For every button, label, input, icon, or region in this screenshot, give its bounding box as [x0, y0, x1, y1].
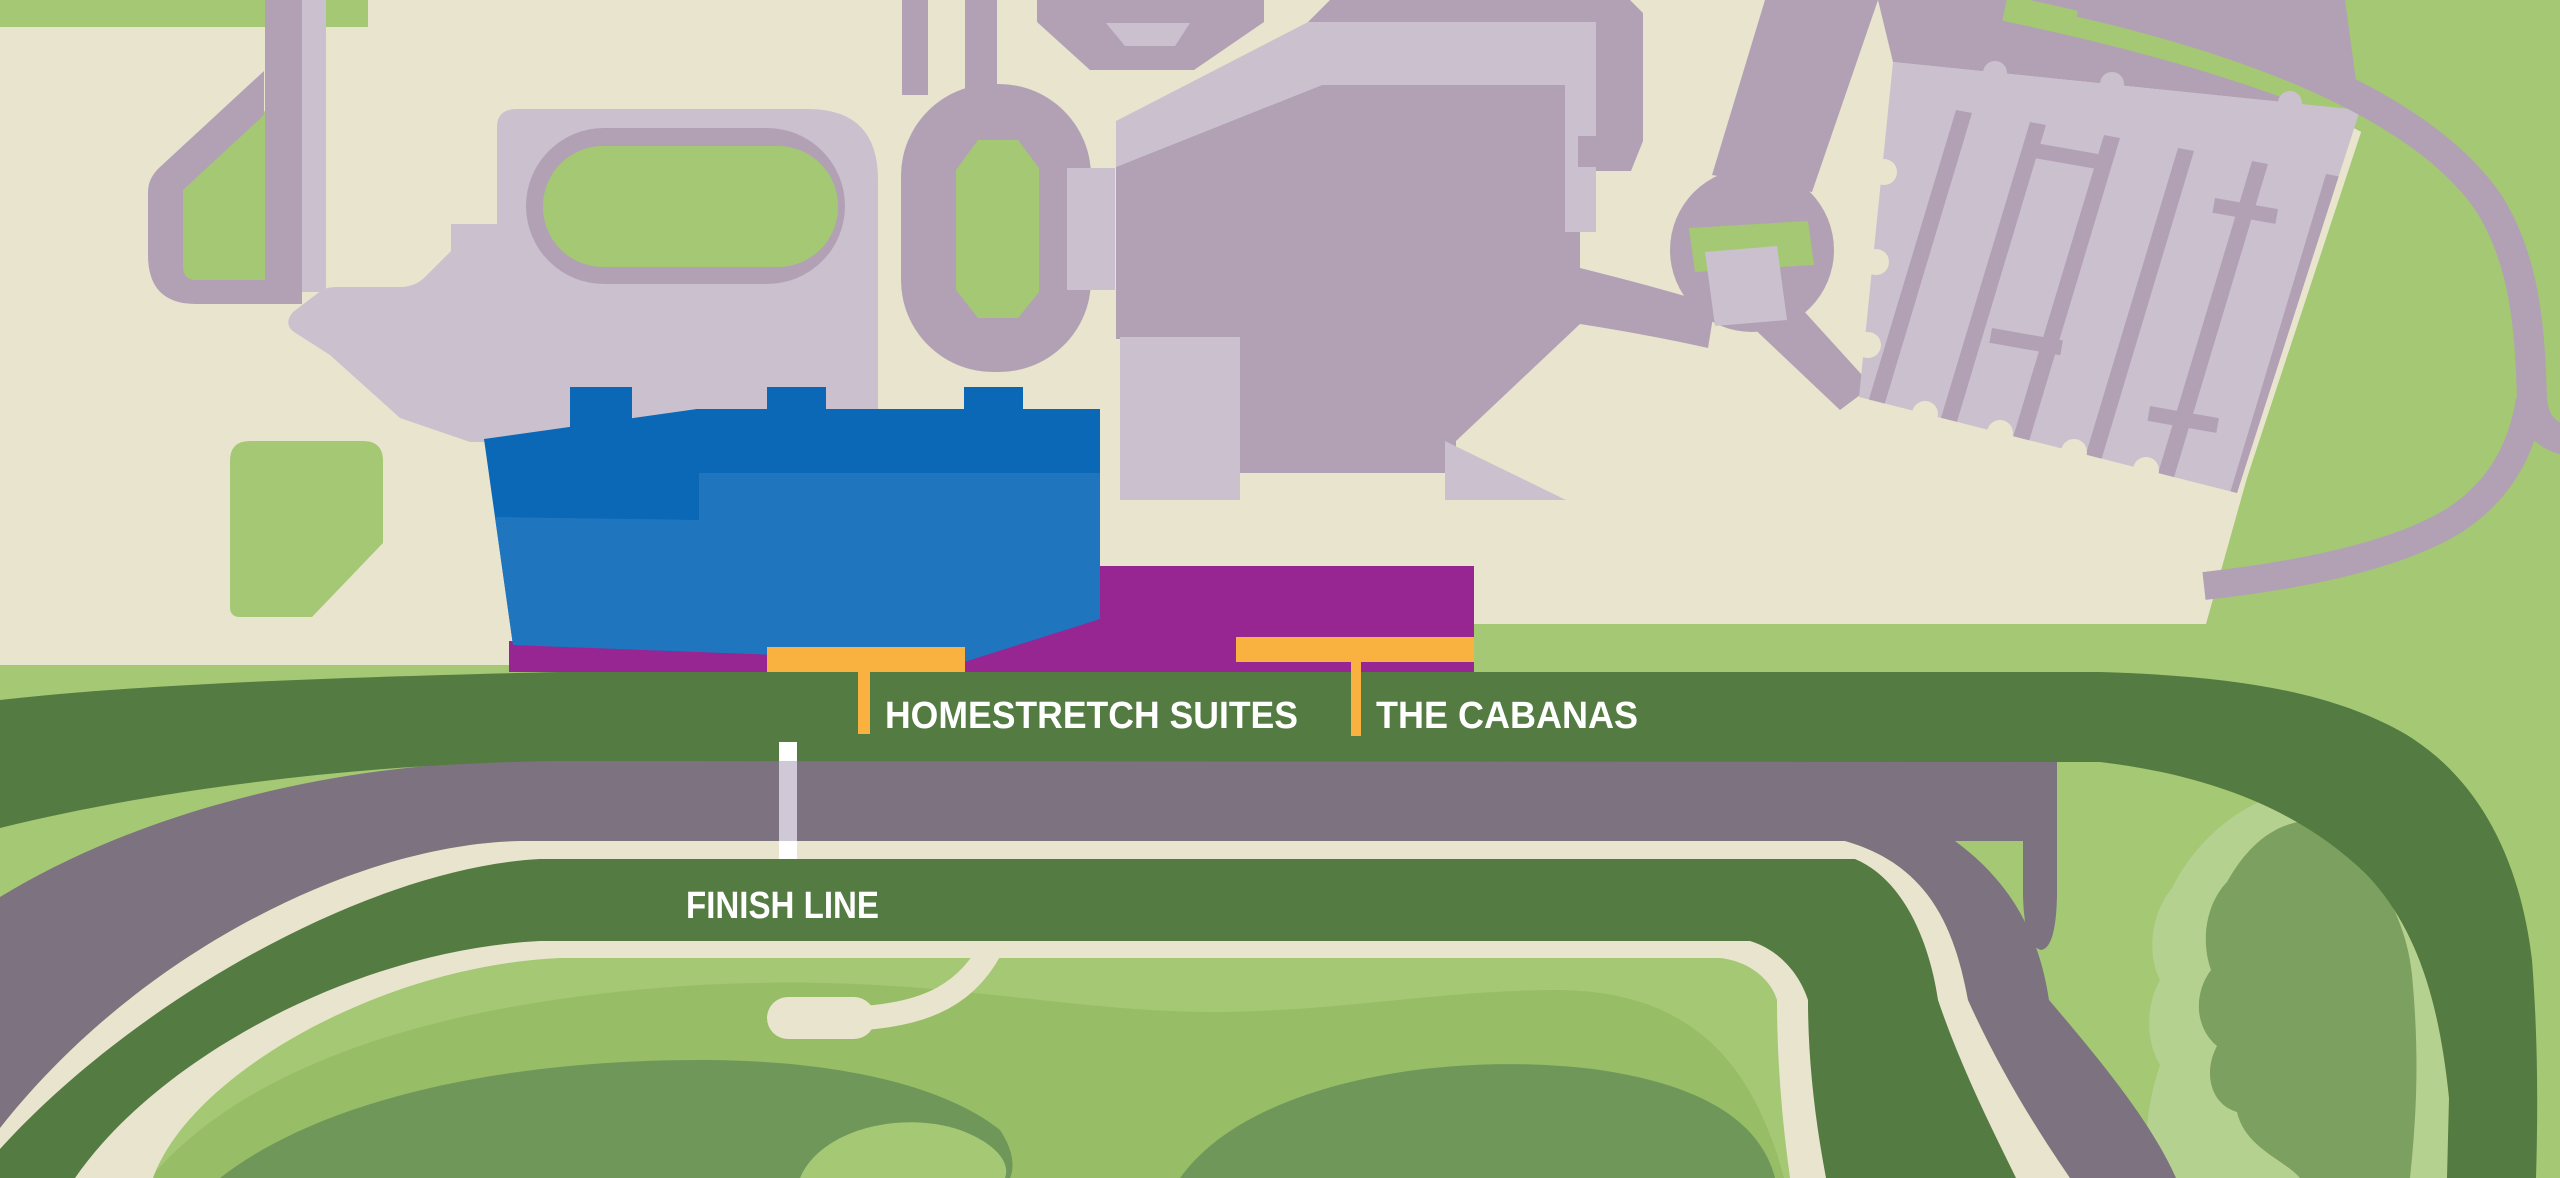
svg-text:FINISH LINE: FINISH LINE	[686, 885, 879, 927]
svg-text:THE CABANAS: THE CABANAS	[1376, 695, 1638, 737]
svg-text:HOMESTRETCH SUITES: HOMESTRETCH SUITES	[885, 695, 1298, 737]
